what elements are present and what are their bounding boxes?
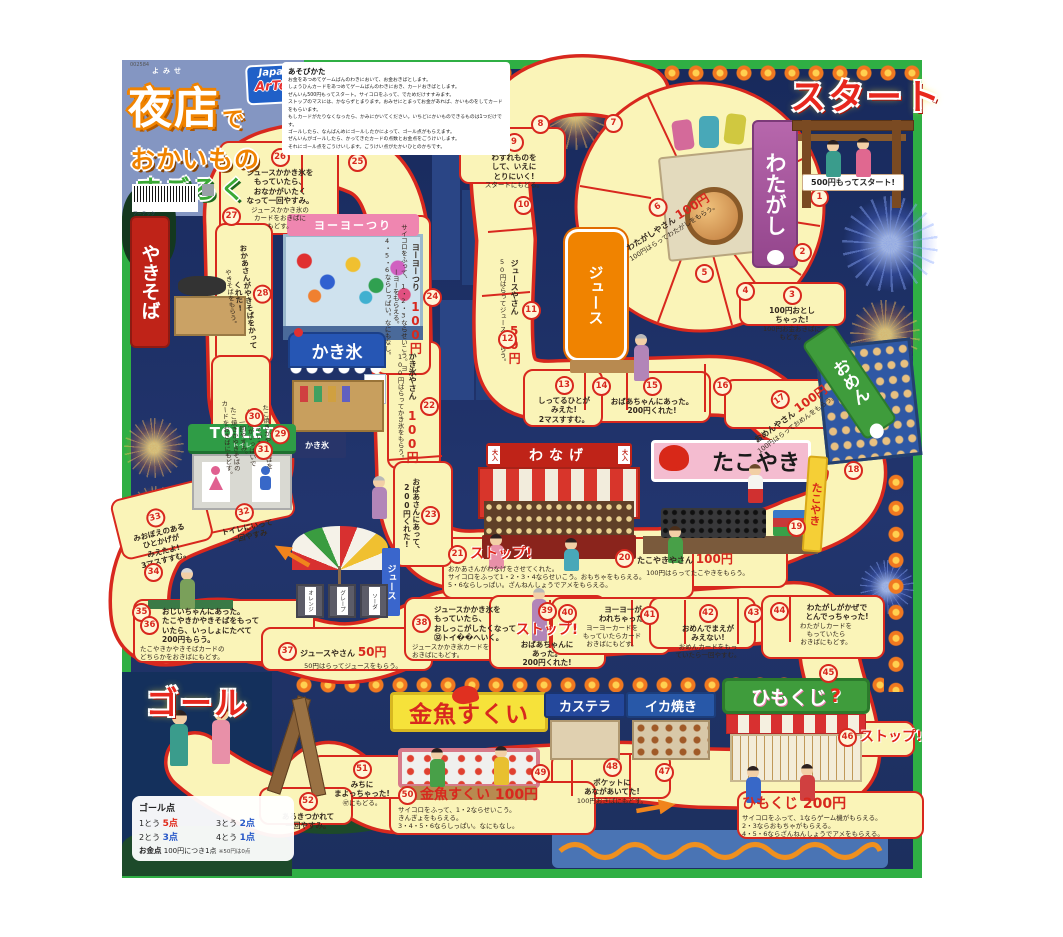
instruction-line: それにゴール点をごうけいします。ごうけい点がたかいひとのかちです。 xyxy=(288,144,504,151)
juice-box: グレープ xyxy=(328,584,356,618)
space-44: 44わたがしがかぜでとんでっちゃった!わたがしカードをもっていたらおきばにもどす… xyxy=(770,602,882,646)
space-text-bold: ポケットにあながあいてた! xyxy=(584,778,640,797)
grandma-body xyxy=(634,345,649,381)
instructions-box: あそびかた お金をあつめてゲームばんのわきにおいて、お金おきばとします。しょうひ… xyxy=(282,62,510,155)
goal-points-row: 4とう 1点 xyxy=(216,830,287,843)
title-main: 夜店 xyxy=(128,72,220,136)
price-line: ひもくじ 200円 xyxy=(742,796,846,814)
space-text: わたがしカードをもっていたらおきばにもどす。 xyxy=(770,622,882,646)
himokuji-sign: ひもくじ ? xyxy=(722,678,870,714)
start-note: 500円もってスタート! xyxy=(802,174,904,191)
space-number: 11 xyxy=(522,301,541,320)
space-number: 40 xyxy=(558,604,577,623)
yakisoba-sign: やきそば xyxy=(130,216,170,348)
space-number: 41 xyxy=(640,606,659,625)
space-24: 24ヨーヨーつり 100円サイコロをふって、1・2・3ならせいこう。ヨーヨーをも… xyxy=(383,222,442,374)
price-line: 金魚すくい 100円 xyxy=(420,787,538,805)
space-37: 37ジュースやさん 50円50円はらってジュースをもらう。 xyxy=(278,642,428,670)
space-number: 16 xyxy=(713,377,732,396)
space-number: 15 xyxy=(643,377,662,396)
page: わたがし ジュース おめん わなげ 大入 大入 たこやき たこやき やきそば ヨ… xyxy=(0,0,1063,937)
candy-bag xyxy=(723,113,747,145)
space-19: 19 xyxy=(787,518,806,538)
space-5: 5 xyxy=(695,264,714,284)
ikayaki-body xyxy=(632,720,710,760)
grandma-figure xyxy=(632,334,650,381)
himokuji-sign-text: ひもくじ xyxy=(751,683,827,710)
instruction-line: ぜんいんがゴールしたら、かってきたカードの点数とお金点をごうけいします。 xyxy=(288,136,504,143)
price-value: 100円 xyxy=(696,552,733,566)
ooiri-badge: 大入 xyxy=(618,446,630,464)
stop-label: ストップ! xyxy=(470,546,532,564)
stop-label: ストップ! xyxy=(860,729,922,747)
grandpa-body xyxy=(180,579,195,609)
price-value: 100円 xyxy=(495,787,538,803)
space-text: ヨーヨーカードをもっていたらカードおきばにもどす。 xyxy=(558,624,666,648)
space-number: 36 xyxy=(140,616,159,635)
rank-label: 2とう xyxy=(139,833,160,842)
grandpa-figure xyxy=(178,568,196,609)
space-number: 28 xyxy=(252,284,273,305)
space-text-bold: おばあさんにあって、200円くれた! xyxy=(402,468,421,563)
barcode-stripes xyxy=(134,186,196,202)
instructions-heading: あそびかた xyxy=(288,66,504,77)
kakigori-body xyxy=(292,380,384,432)
space-text-bold: おめんでまえがみえない! xyxy=(682,624,734,643)
women-icon-dress xyxy=(209,476,223,490)
kasutera-sign: カステラ xyxy=(544,692,626,718)
space-46: 46ストップ! xyxy=(838,728,928,748)
points-value: 2点 xyxy=(240,819,255,829)
money-points-line: お金点 100円につき1点 ※50円は0点 xyxy=(139,845,287,856)
instruction-line: ゴールしたら、なんばんめにゴールしたかによって、ゴール点がもらえます。 xyxy=(288,129,504,136)
women-icon xyxy=(211,466,220,475)
instruction-line: もしカードがたりなくなったら、かみにかいてください。いちどにかいものできるものは… xyxy=(288,114,504,129)
space-45: 45 xyxy=(819,664,838,684)
space-number: 29 xyxy=(271,425,291,445)
space-text-bold: わたがしがかぜでとんでっちゃった! xyxy=(792,603,882,622)
space-23: 23おばあさんにあって、200円くれた! xyxy=(402,468,441,563)
space-text: 50円はらってジュースをもらう。 xyxy=(278,662,428,670)
river-wave xyxy=(560,845,880,858)
ikayaki-sign: イカ焼き xyxy=(626,692,716,718)
space-number: 19 xyxy=(787,518,806,537)
kid-body xyxy=(212,720,230,764)
space-text: 100円お金おきばにもどす。 xyxy=(763,325,821,341)
price-line: ジュースやさん 50円 xyxy=(506,252,521,370)
gate-post xyxy=(892,120,901,208)
space-number: 39 xyxy=(538,602,557,621)
space-number: 5 xyxy=(695,264,714,283)
space-11: 11ジュースやさん 50円50円はらってジュースをもらう。 xyxy=(498,252,541,370)
space-10: 10 xyxy=(514,196,533,216)
space-text: おかあさんがわなげをさせてくれた。サイコロをふって1・2・3・4ならせいこう。お… xyxy=(448,565,688,589)
rank-label: 4とう xyxy=(216,833,237,842)
space-number: 22 xyxy=(420,397,439,416)
title-particle: で xyxy=(222,102,244,134)
kasutera-stall: カステラ xyxy=(544,692,628,764)
space-number: 23 xyxy=(421,506,440,525)
space-number: 51 xyxy=(353,760,372,779)
kid-body xyxy=(170,724,188,766)
maker-text: アーテック xyxy=(133,211,155,217)
juice-box-label: ソーダ xyxy=(369,587,380,615)
octopus-icon xyxy=(659,445,689,471)
juice-box: ソーダ xyxy=(360,584,388,618)
space-number: 10 xyxy=(514,196,533,215)
instructions-lines: お金をあつめてゲームばんのわきにおいて、お金おきばとします。しょうひんカードをあ… xyxy=(288,77,504,151)
space-16: 16 xyxy=(713,377,732,397)
print-mark xyxy=(202,184,214,196)
space-number: 45 xyxy=(819,664,838,683)
goal-points-row: 2とう 3点 xyxy=(139,830,210,843)
space-number: 12 xyxy=(498,330,517,349)
space-number: 13 xyxy=(555,376,574,395)
space-text-bold: しってるひとがみえた!2マスすすむ。 xyxy=(538,396,590,424)
space-31: 31 xyxy=(254,441,273,461)
vendor-body xyxy=(748,475,763,503)
grandma-figure xyxy=(370,476,388,519)
start-kid xyxy=(824,140,842,177)
space-number: 34 xyxy=(144,563,163,582)
money-points-label: お金点 xyxy=(139,846,162,855)
rank-label: 3とう xyxy=(216,819,237,828)
space-number: 49 xyxy=(531,764,550,783)
kid-figure xyxy=(492,746,510,785)
price-value: 200円 xyxy=(803,796,846,812)
space-15: 15おばあちゃんにあった。200円くれた! xyxy=(598,377,706,416)
himokuji-question-mark: ? xyxy=(830,685,841,707)
barcode xyxy=(132,184,198,212)
space-text-bold: おばあちゃんにあった。200円くれた! xyxy=(611,397,694,416)
scoring-box: ゴール点 1とう 5点 3とう 2点 2とう 3点 4とう 1点 お金点 100… xyxy=(132,796,294,861)
space-25: 25 xyxy=(348,153,367,173)
goal-points-title: ゴール点 xyxy=(139,801,287,814)
space-21: 21ストップ!おかあさんがわなげをさせてくれた。サイコロをふって1・2・3・4な… xyxy=(448,545,688,589)
ooiri-badge: 大入 xyxy=(488,446,500,464)
space-8: 8 xyxy=(531,115,550,135)
rank-label: 1とう xyxy=(139,819,160,828)
space-number: 4 xyxy=(736,282,755,301)
space-4: 4 xyxy=(736,282,755,302)
space-text: 50円はらってジュースをもらう。 xyxy=(498,252,506,370)
space-34: 34 xyxy=(144,563,163,583)
space-number: 38 xyxy=(412,614,431,633)
goal-label: ゴール xyxy=(146,678,248,724)
price-value: 100円 xyxy=(408,300,422,354)
goal-points-grid: 1とう 5点 3とう 2点 2とう 3点 4とう 1点 xyxy=(139,816,287,843)
space-number: 44 xyxy=(770,602,789,621)
space-text: ジュースかかき氷のカードをおきばにもどす。 xyxy=(251,206,309,230)
space-number: 52 xyxy=(299,792,318,811)
points-value: 5点 xyxy=(163,819,178,829)
berry-icon xyxy=(294,328,303,337)
space-30: 30 xyxy=(245,408,264,428)
kasutera-body xyxy=(550,720,620,760)
vendor-figure xyxy=(746,464,764,503)
start-gate: 500円もってスタート! xyxy=(792,112,912,212)
kakigori-sign: かき氷 xyxy=(288,332,386,368)
space-number: 24 xyxy=(423,288,442,307)
space-text: サイコロをふって、1・2ならせいこう。きんぎょをもらえる。3・4・5・6ならしっ… xyxy=(398,806,588,830)
space-7: 7 xyxy=(604,114,623,134)
money-points-note: ※50円は0点 xyxy=(219,849,251,855)
money-points-text: 100円につき1点 xyxy=(164,847,217,855)
space-number: 37 xyxy=(278,642,297,661)
product-code: 002584 xyxy=(130,62,149,68)
space-text: サイコロをふって、1・2・3ならせいこう。ヨーヨーをもらえる。4・5・6ならしっ… xyxy=(383,222,407,374)
space-number: 3 xyxy=(783,286,802,305)
yakisoba-pan xyxy=(178,276,226,296)
instruction-line: ぜんいん500円もってスタート。サイコロをふって、でためだけすすみます。 xyxy=(288,92,504,99)
space-text: サイコロをふって、1ならゲーム機がもらえる。2・3ならおもちゃがもらえる。4・5… xyxy=(742,814,884,838)
space-50: 50金魚すくい 100円サイコロをふって、1・2ならせいこう。きんぎょをもらえる… xyxy=(398,786,588,830)
space-text: スタートにもどる。 xyxy=(485,181,543,189)
candy-bag xyxy=(699,116,719,148)
space-text-bold: 100円おとしちゃった! xyxy=(769,306,815,325)
price-value: 100円 xyxy=(405,409,419,463)
space-43: 43 xyxy=(744,604,763,624)
space-29: 29たこ焼きかやきそばをもっていたら、おなかがいっぱいで一回やすみ。たこ焼きかや… xyxy=(217,360,296,514)
space-number: 31 xyxy=(254,441,273,460)
space-number: 2 xyxy=(793,243,812,262)
space-number: 8 xyxy=(531,115,550,134)
space-number: 46 xyxy=(838,728,857,747)
space-12: 12 xyxy=(498,330,517,350)
space-41: 41 xyxy=(640,606,659,626)
kid-body xyxy=(856,149,871,177)
candy-bag xyxy=(671,119,695,151)
points-value: 1点 xyxy=(240,833,255,843)
space-49: 49 xyxy=(531,764,550,784)
instruction-line: しょうひんカードをあつめてゲームばんのわきにおき、カードおきばとします。 xyxy=(288,84,504,91)
space-number: 25 xyxy=(348,153,367,172)
space-number: 7 xyxy=(604,114,623,133)
start-label: スタート xyxy=(790,68,942,120)
space-42: 42おめんでまえがみえない!おめんカードをもっていたら一回やすむ。 xyxy=(658,604,758,659)
space-text-bold: おじいちゃんにあった。たこやきかやきそばをもっていたら、いっしょにたべて200円… xyxy=(162,607,308,645)
space-13: 13しってるひとがみえた!2マスすすむ。 xyxy=(528,376,600,424)
space-text-bold: わすれものをして、いえにとりにいく! xyxy=(492,153,537,181)
space-number: 27 xyxy=(222,207,241,226)
start-kid xyxy=(854,138,872,177)
instruction-line: お金をあつめてゲームばんのわきにおいて、お金おきばとします。 xyxy=(288,77,504,84)
space-text: おめんカードをもっていたら一回やすむ。 xyxy=(676,643,741,659)
kid-figure xyxy=(428,748,446,787)
juice-sign: ジュース xyxy=(568,232,624,358)
space-text: たこ焼きかやきそばをもっていたら、おなかがいっぱいで一回やすみ。たこ焼きかやきそ… xyxy=(217,361,276,514)
juice-box-label: グレープ xyxy=(337,587,348,615)
space-27: 27 xyxy=(222,207,241,227)
juice-counter xyxy=(570,360,636,373)
kid-body xyxy=(430,759,445,787)
space-note: ひもくじ 200円サイコロをふって、1ならゲーム機がもらえる。2・3ならおもちゃ… xyxy=(742,796,920,838)
space-number: 42 xyxy=(699,604,718,623)
instruction-line: ストップのマスには、かならずとまります。おみせにとまってお金があれば、かいものを… xyxy=(288,99,504,114)
goal-points-row: 1とう 5点 xyxy=(139,816,210,829)
kingyo-tank xyxy=(398,748,540,788)
cotton-puff xyxy=(767,250,784,265)
price-line: ジュースやさん 50円 xyxy=(300,645,387,660)
price-value: 50円 xyxy=(358,645,387,659)
kid-body xyxy=(826,151,841,177)
space-3: 3100円おとしちゃった!100円お金おきばにもどす。 xyxy=(742,286,842,341)
prize-shelf xyxy=(484,501,634,535)
space-number: 21 xyxy=(448,545,467,564)
wanage-sign: わなげ xyxy=(486,443,632,467)
goal-points-row: 3とう 2点 xyxy=(216,816,287,829)
space-18: 18 xyxy=(844,461,863,481)
space-number: 18 xyxy=(844,461,863,480)
price-line: ヨーヨーつり 100円 xyxy=(407,222,422,374)
space-2: 2 xyxy=(793,243,812,263)
space-number: 43 xyxy=(744,604,763,623)
kid-body xyxy=(494,757,509,785)
gate-beam xyxy=(798,134,906,141)
space-number: 30 xyxy=(245,408,264,427)
space-number: 48 xyxy=(603,758,622,777)
grandma-body xyxy=(372,487,387,519)
points-value: 3点 xyxy=(163,833,178,843)
ikayaki-stall: イカ焼き xyxy=(626,692,718,764)
gate-post xyxy=(802,120,811,208)
